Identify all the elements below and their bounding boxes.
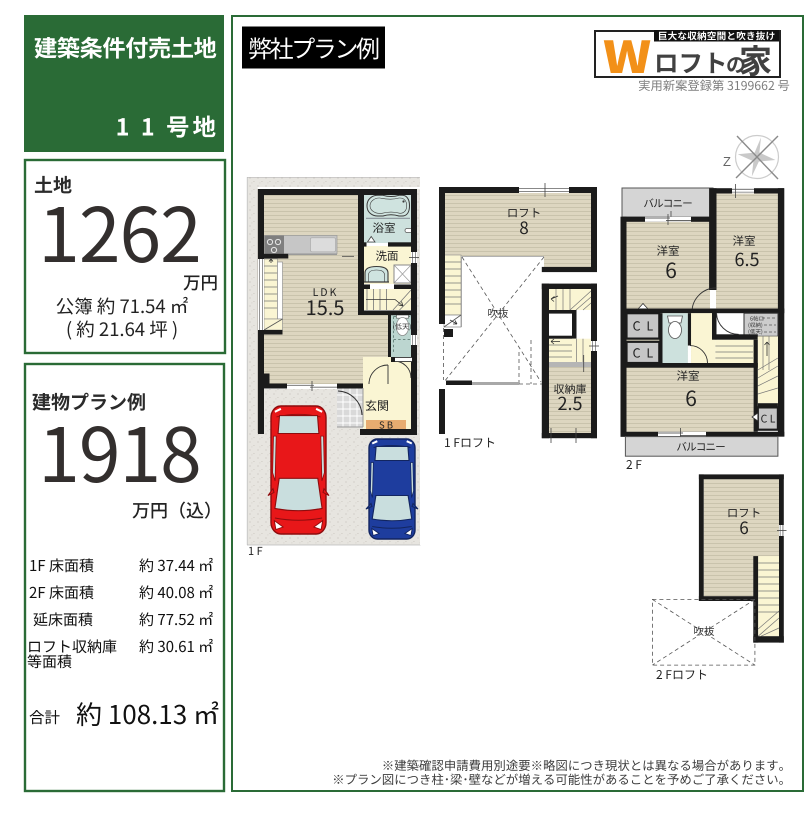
svg-text:Z: Z <box>723 154 731 169</box>
